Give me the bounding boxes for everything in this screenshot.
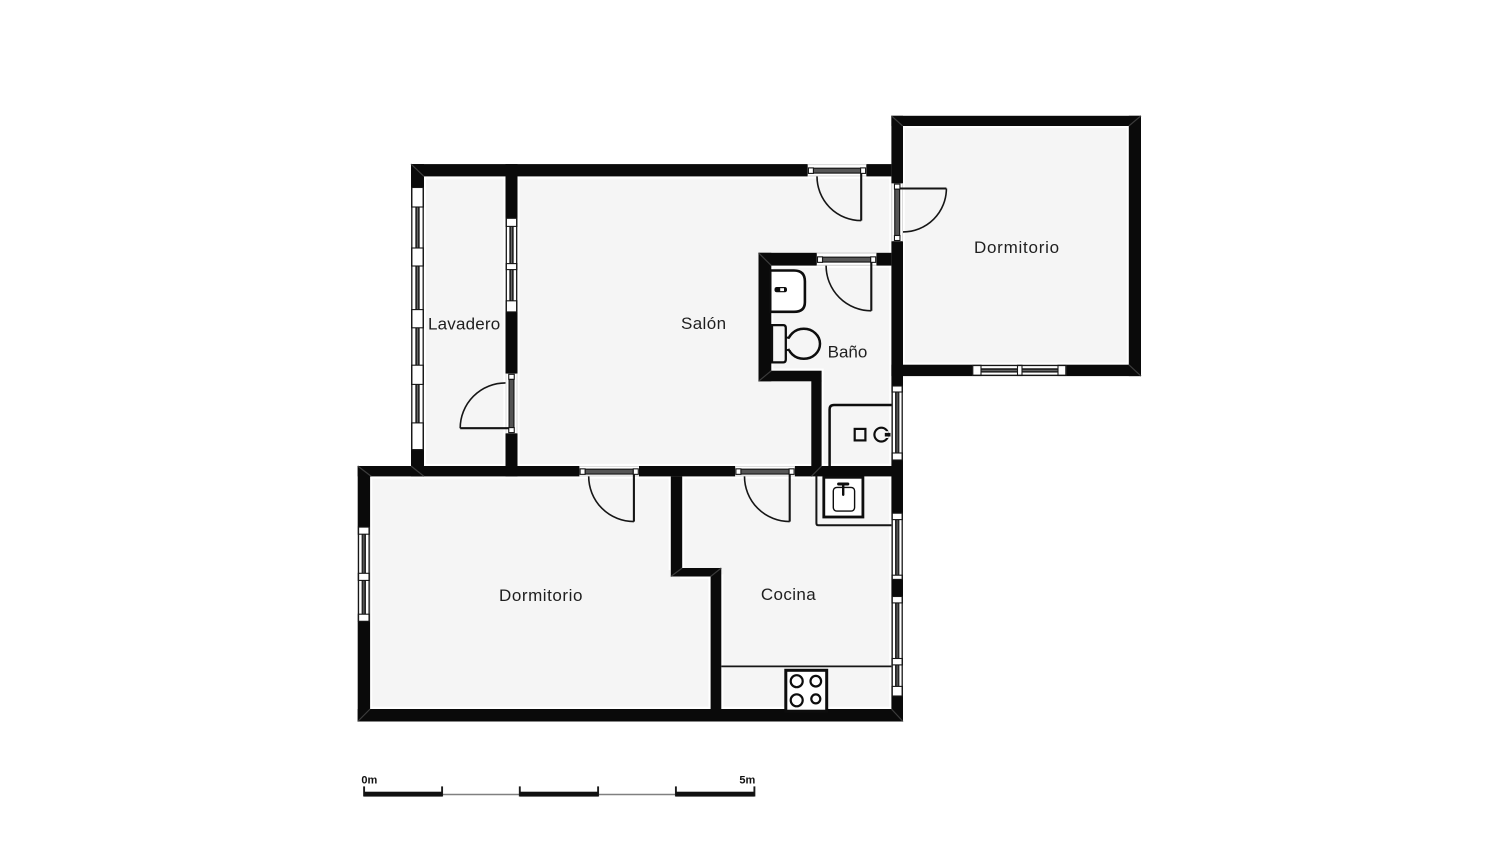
svg-text:Dormitorio: Dormitorio bbox=[499, 586, 583, 605]
svg-text:5m: 5m bbox=[739, 774, 755, 786]
svg-text:Dormitorio: Dormitorio bbox=[974, 238, 1060, 257]
svg-text:0m: 0m bbox=[361, 774, 377, 786]
svg-text:Lavadero: Lavadero bbox=[428, 314, 501, 333]
svg-text:Salón: Salón bbox=[681, 314, 726, 333]
svg-text:Cocina: Cocina bbox=[761, 585, 816, 604]
svg-text:Baño: Baño bbox=[828, 343, 868, 362]
